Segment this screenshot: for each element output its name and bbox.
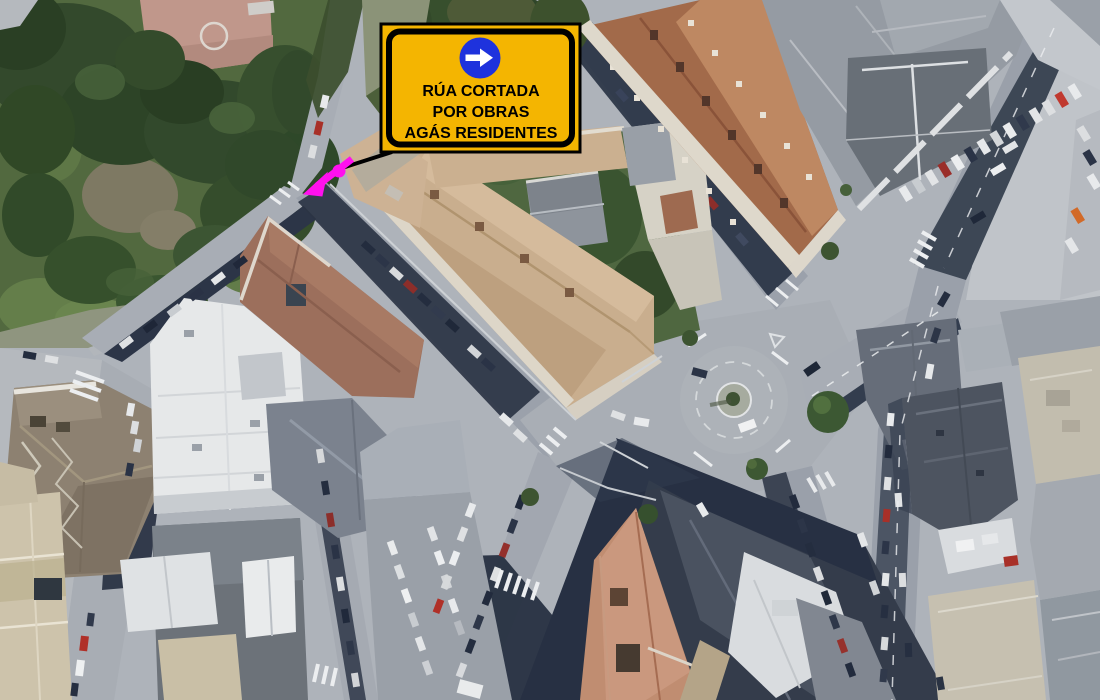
- svg-text:AGÁS RESIDENTES: AGÁS RESIDENTES: [405, 123, 558, 142]
- svg-text:POR OBRAS: POR OBRAS: [433, 104, 530, 121]
- svg-text:RÚA CORTADA: RÚA CORTADA: [422, 81, 540, 100]
